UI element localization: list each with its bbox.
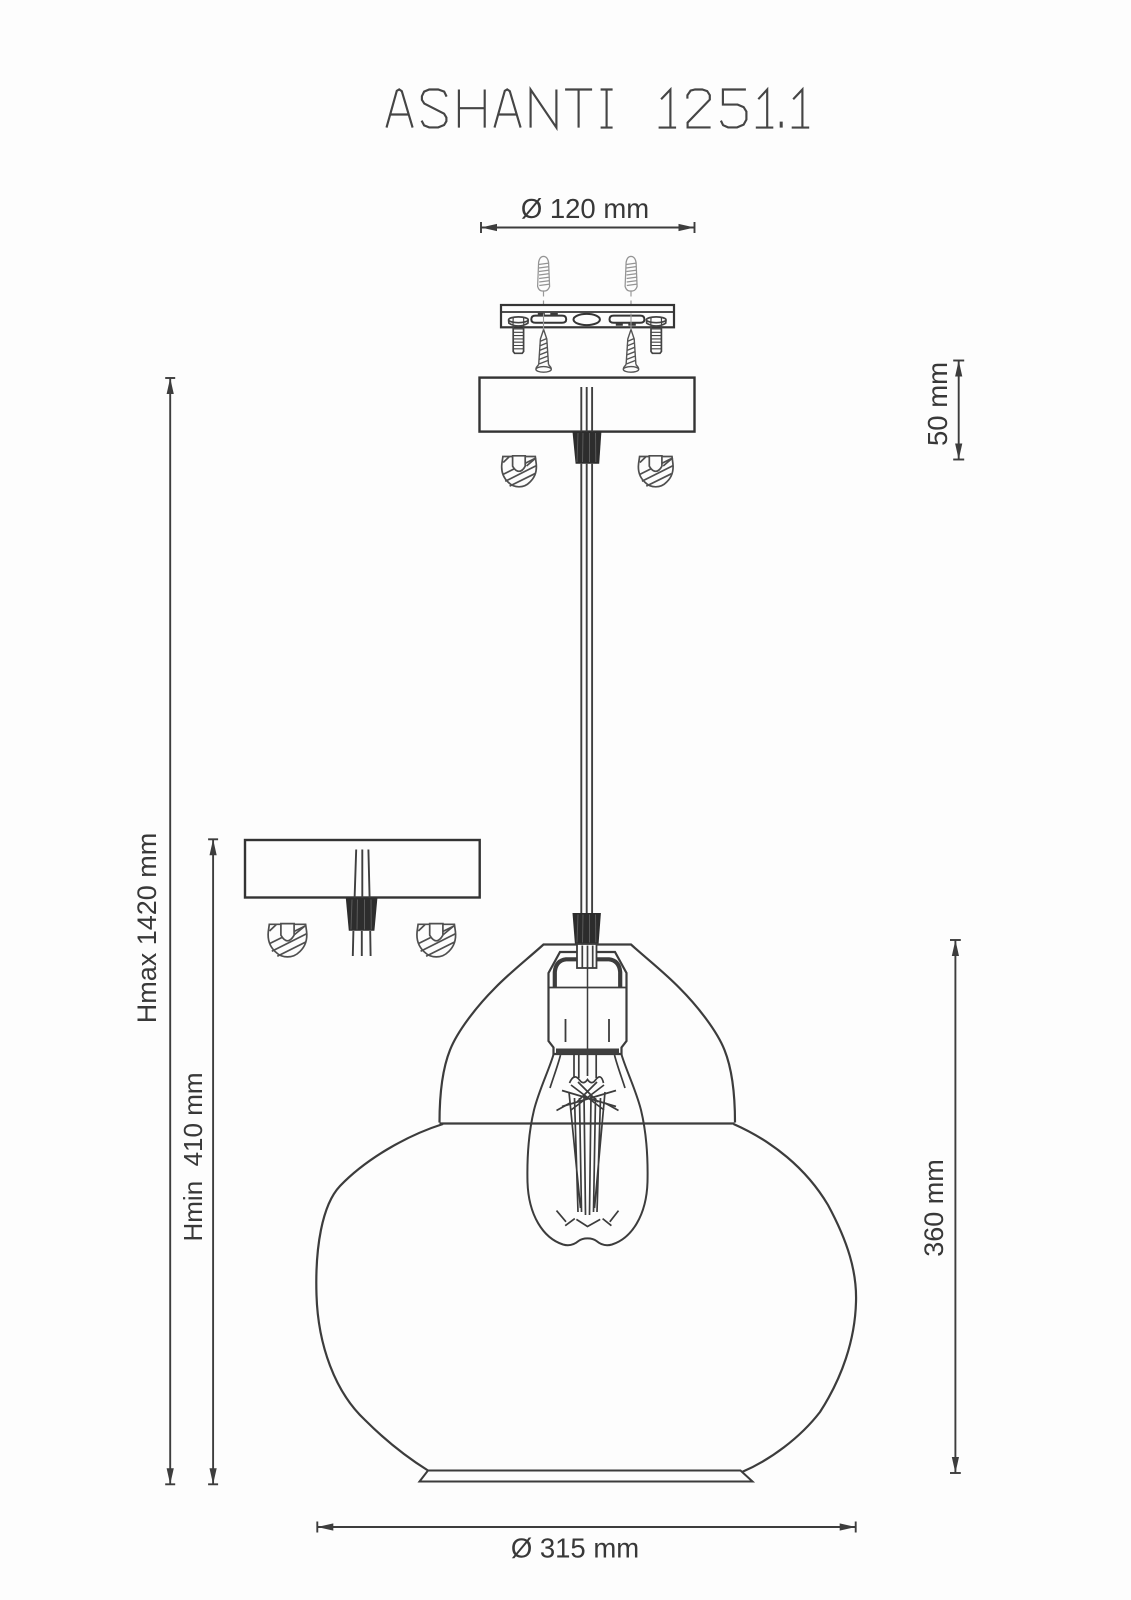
svg-text:Ø 120 mm: Ø 120 mm [521, 193, 649, 224]
svg-text:Hmax 1420 mm: Hmax 1420 mm [132, 833, 162, 1024]
svg-text:50 mm: 50 mm [922, 362, 953, 446]
svg-text:Hmin 410 mm: Hmin 410 mm [178, 1072, 208, 1241]
svg-text:Ø 315 mm: Ø 315 mm [511, 1533, 639, 1564]
svg-text:360 mm: 360 mm [919, 1159, 949, 1257]
